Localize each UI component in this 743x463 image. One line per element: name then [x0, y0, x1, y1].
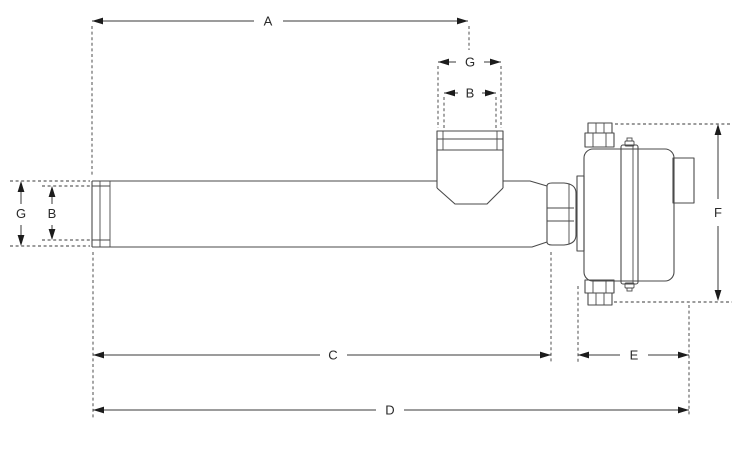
arrowhead-icon [444, 90, 455, 97]
arrowhead-icon [93, 352, 104, 359]
top-nozzle [437, 131, 503, 204]
arrowhead-icon [715, 290, 722, 301]
dimension-g-left-label: G [16, 206, 26, 221]
dimension-b-left-label: B [48, 206, 57, 221]
arrowhead-icon [18, 235, 25, 246]
arrowhead-icon [49, 186, 56, 197]
dimension-a-label: A [264, 14, 273, 29]
dimension-c-label: C [328, 348, 337, 363]
technical-drawing: A G B G B [0, 0, 743, 463]
cover-clamp-band [621, 138, 638, 291]
conduit-hub [673, 158, 694, 203]
arrowhead-icon [540, 352, 551, 359]
arrowhead-icon [490, 59, 501, 66]
arrowhead-icon [715, 124, 722, 135]
dimension-c: C [93, 252, 551, 418]
arrowhead-icon [92, 18, 103, 25]
arrowhead-icon [485, 90, 496, 97]
top-conduit-plug [585, 123, 614, 147]
dimension-e-label: E [630, 348, 639, 363]
arrowhead-icon [438, 59, 449, 66]
terminal-housing [584, 149, 674, 281]
dimension-d: D [93, 403, 689, 418]
arrowhead-icon [678, 407, 689, 414]
arrowhead-icon [457, 18, 468, 25]
drawing-canvas: A G B G B [0, 0, 743, 463]
left-end-cap [92, 181, 110, 247]
band-screw-top-nub [627, 138, 632, 141]
dimension-b-left: B [42, 186, 90, 240]
dimension-b-top-label: B [466, 86, 475, 101]
dimension-e: E [578, 286, 689, 417]
arrowhead-icon [578, 352, 589, 359]
bottom-conduit-plug [585, 280, 614, 305]
band-screw-bottom-nub [627, 288, 632, 291]
arrowhead-icon [678, 352, 689, 359]
dimension-b-top: B [444, 86, 496, 129]
arrowhead-icon [49, 229, 56, 240]
arrowhead-icon [93, 407, 104, 414]
mounting-collar [577, 176, 584, 251]
dimension-f-label: F [714, 205, 722, 220]
dimension-d-label: D [385, 403, 394, 418]
heater-assembly [92, 123, 694, 305]
main-tube [92, 181, 547, 247]
hex-fitting [547, 183, 576, 245]
dimension-g-top-label: G [465, 55, 475, 70]
dimension-a: A [92, 14, 469, 178]
arrowhead-icon [18, 181, 25, 192]
